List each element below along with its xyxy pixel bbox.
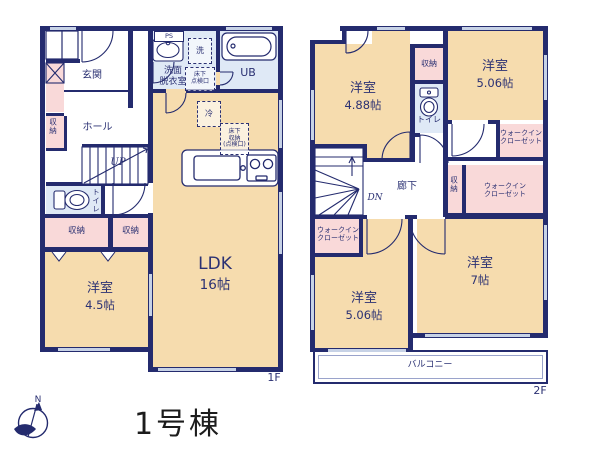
window [279, 100, 282, 148]
fridge-box: 冷 [197, 101, 221, 127]
wall [310, 144, 367, 148]
closet-a-area [45, 218, 108, 247]
shaft-column [46, 83, 64, 112]
entrance-label: 玄関 [72, 70, 112, 82]
wall [40, 26, 45, 352]
wall [46, 182, 148, 186]
wall [310, 253, 363, 257]
laundry-box: 洗 [188, 38, 212, 64]
wall [342, 26, 346, 40]
window [544, 225, 547, 300]
wall [408, 219, 413, 348]
wall [128, 31, 133, 108]
window [58, 348, 110, 351]
floor2-label: 2F [529, 384, 551, 397]
window [544, 55, 547, 100]
floorplan-canvas: 玄関 ホール UP 収納 トイレ 収納 収納 洋室 4.5帖 LDK 16帖 洗… [0, 0, 600, 450]
wall [46, 59, 80, 63]
wic-a-area [500, 124, 543, 157]
wall [108, 218, 113, 247]
underfloor-hatch-label: 床下 点検口 [191, 72, 209, 86]
toilet2-area [415, 84, 443, 133]
wall [82, 144, 148, 147]
window [226, 27, 272, 30]
wall [46, 148, 67, 151]
wall [443, 120, 452, 124]
building-title: 1号棟 [108, 399, 248, 443]
room-western-4-88 [372, 31, 410, 44]
wall [410, 133, 420, 137]
wall [496, 124, 500, 157]
closet-top-area [415, 48, 443, 80]
stairs-up-icon [82, 147, 148, 184]
stairs-down-label: DN [362, 193, 388, 204]
laundry-label: 洗 [196, 46, 204, 55]
window [311, 275, 314, 330]
wall [148, 93, 153, 183]
wall [46, 113, 64, 116]
room-western-4-88 [315, 44, 410, 158]
wall [462, 165, 466, 213]
wall [363, 158, 415, 162]
wall [410, 44, 415, 158]
wic-c-area [315, 219, 359, 253]
wall [101, 186, 105, 214]
window [158, 368, 236, 371]
wall [64, 116, 67, 148]
wall [40, 247, 153, 252]
wall [64, 90, 128, 92]
corridor-label: 廊下 [385, 181, 429, 193]
wall [359, 219, 363, 253]
closet-mid-area [448, 165, 462, 213]
wall [443, 31, 448, 161]
wall [363, 144, 367, 162]
closet-b-area [113, 218, 148, 247]
window [462, 27, 532, 30]
hall-label: ホール [75, 122, 120, 134]
window [50, 27, 76, 30]
floor1-label: 1F [264, 371, 284, 384]
wall [445, 215, 548, 219]
window [425, 334, 530, 337]
underfloor-hatch-box: 床下 点検口 [185, 67, 215, 91]
toilet1-area [46, 186, 101, 214]
pipe-space-box: PS [154, 31, 184, 42]
wic-b-area [466, 165, 543, 213]
underfloor-storage-label: 床下 収納 (点検口) [223, 129, 246, 150]
window [279, 192, 282, 254]
wall [40, 214, 153, 218]
wall [216, 31, 220, 72]
compass-north-label: N [30, 395, 46, 406]
wall [443, 161, 448, 217]
stairs-up-label: UP [103, 157, 133, 169]
wall [443, 157, 548, 161]
wall [153, 89, 166, 93]
window [377, 27, 405, 30]
wall [310, 40, 346, 44]
shoe-closet-icon [46, 31, 78, 59]
wall [148, 31, 153, 93]
shaft-x-icon [46, 63, 64, 83]
underfloor-storage-box: 床下 収納 (点検口) [220, 123, 249, 155]
pipe-space-label: PS [165, 33, 173, 41]
fridge-label: 冷 [205, 109, 213, 118]
room-western-4-5 [45, 252, 148, 347]
compass-icon [14, 402, 48, 438]
room-western-7 [417, 219, 543, 333]
balcony-inner-line [318, 355, 543, 379]
window [328, 349, 406, 352]
window [311, 90, 314, 140]
side-closet-area [46, 116, 64, 148]
bath-area [220, 31, 278, 89]
stairs-down-icon [315, 148, 363, 215]
room-western-5-06-top [448, 31, 543, 120]
sliding-door [149, 274, 152, 316]
